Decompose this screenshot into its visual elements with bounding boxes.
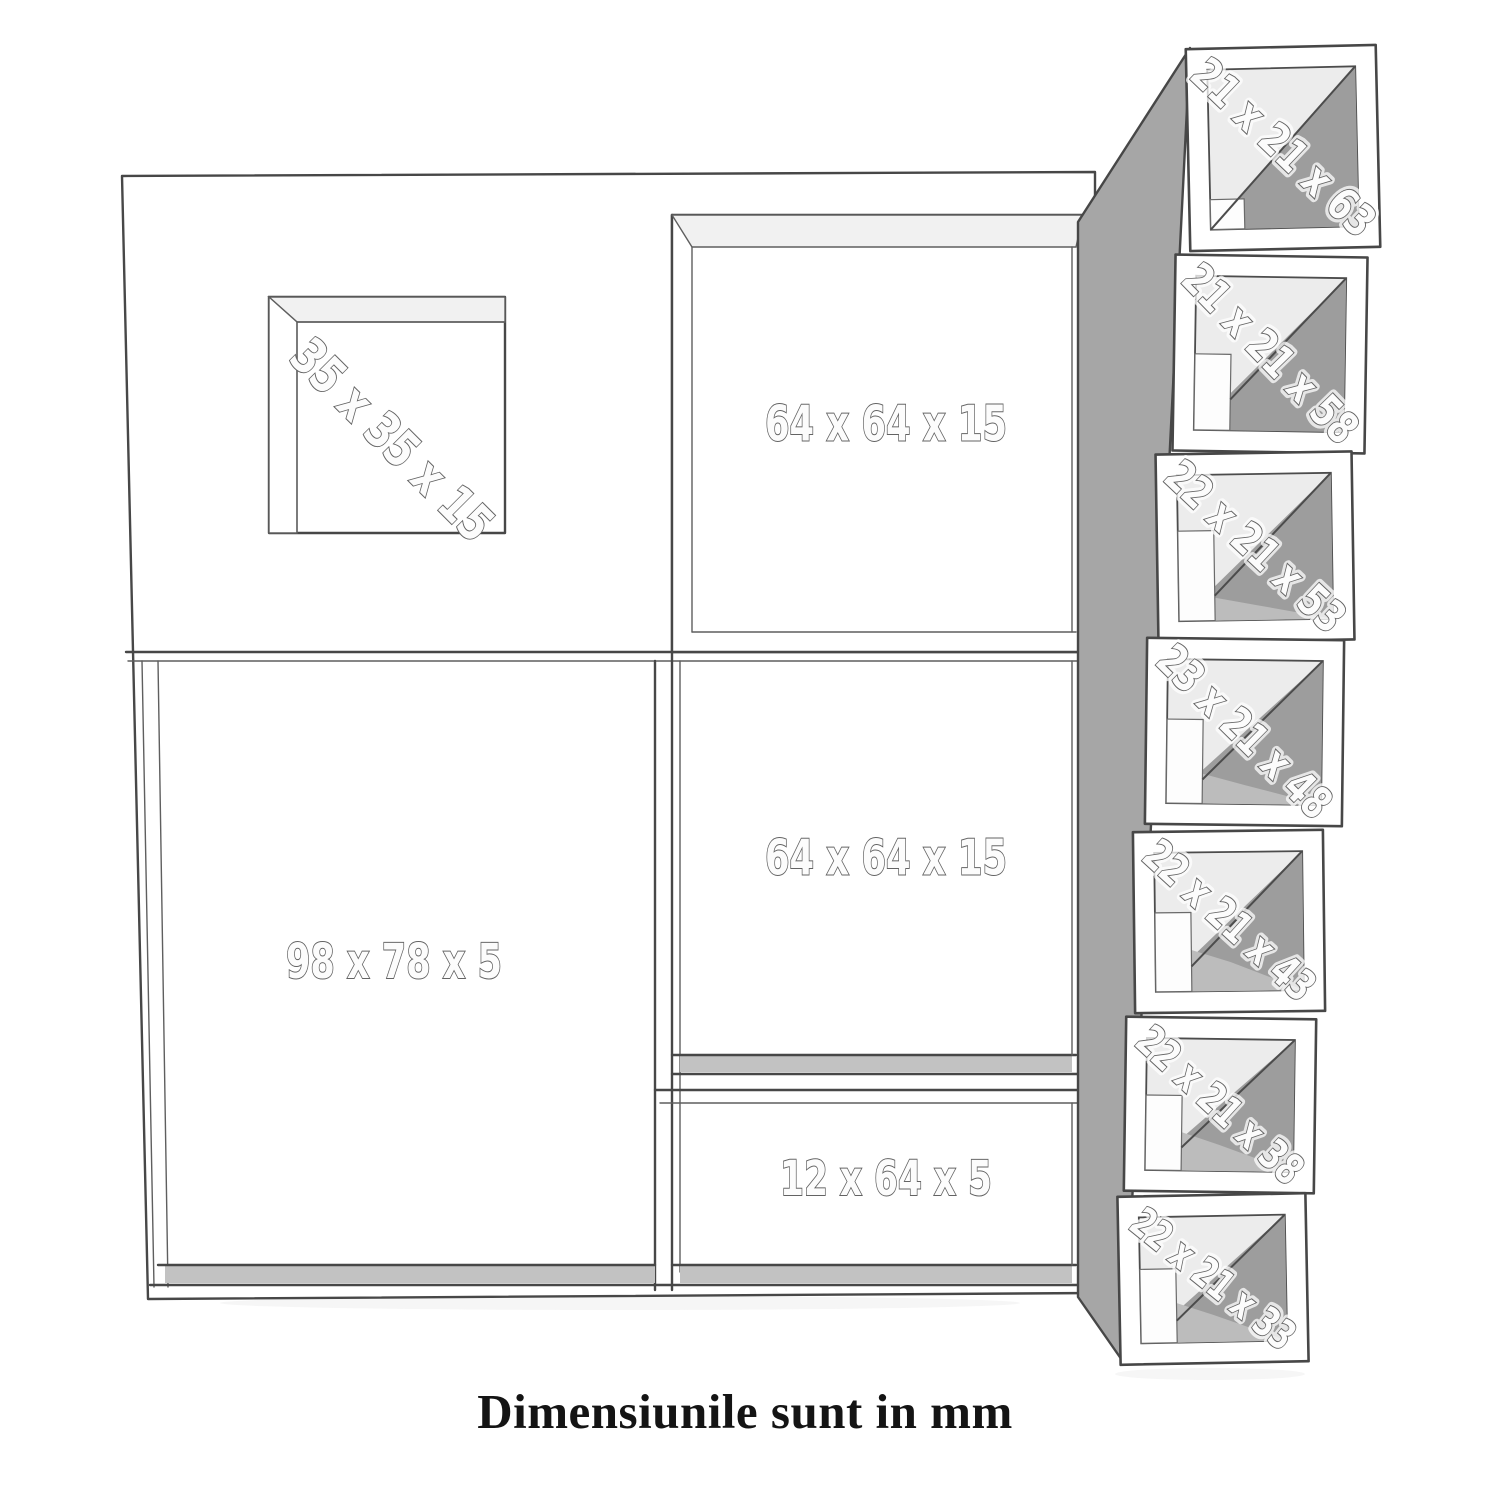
compartment-top-64-label: 64 x 64 x 15 bbox=[765, 396, 1007, 453]
stack-box-1: 21 x 21 x 63 21 x 21 x 63 bbox=[1180, 45, 1387, 252]
stack-box-4: 23 x 21 x 48 23 x 21 x 48 bbox=[1144, 634, 1344, 829]
dimension-diagram: 35 x 35 x 15 64 x 64 x 15 64 x 64 x 15 bbox=[0, 0, 1485, 1485]
compartment-top-64-bevel bbox=[672, 215, 1083, 247]
compartment-bottom-12-label: 12 x 64 x 5 bbox=[780, 1151, 992, 1207]
compartment-top-64: 64 x 64 x 15 bbox=[672, 215, 1083, 652]
caption: Dimensiunile sunt in mm bbox=[477, 1384, 1013, 1439]
diagram-canvas: 35 x 35 x 15 64 x 64 x 15 64 x 64 x 15 bbox=[0, 0, 1485, 1485]
stack-box-7: 22 x 21 x 33 22 x 21 x 33 bbox=[1117, 1193, 1308, 1365]
niche-35: 35 x 35 x 15 bbox=[269, 297, 505, 553]
stack-box-4-wall bbox=[1166, 719, 1203, 803]
compartment-bottom-12-floor bbox=[680, 1265, 1072, 1283]
stack-box-6: 22 x 21 x 38 22 x 21 x 38 bbox=[1124, 1015, 1316, 1195]
stack-box-5-wall bbox=[1155, 912, 1192, 991]
stack-box-5: 22 x 21 x 43 22 x 21 x 43 bbox=[1132, 828, 1326, 1014]
stack-box-3-wall bbox=[1178, 531, 1215, 622]
compartment-left-98-label: 98 x 78 x 5 bbox=[286, 934, 502, 990]
stack-box-6-wall bbox=[1145, 1095, 1182, 1170]
stack-box-2-wall bbox=[1194, 354, 1231, 431]
niche-35-left-bevel bbox=[269, 297, 297, 533]
niche-35-top-bevel bbox=[269, 297, 505, 322]
stack-box-3: 22 x 21 x 53 22 x 21 x 53 bbox=[1154, 448, 1356, 646]
stack-box-2: 21 x 21 x 58 21 x 21 x 58 bbox=[1169, 253, 1371, 455]
compartment-left-98-floor bbox=[165, 1265, 655, 1283]
stack-box-7-wall bbox=[1140, 1269, 1177, 1344]
main-unit: 35 x 35 x 15 64 x 64 x 15 64 x 64 x 15 bbox=[122, 172, 1095, 1299]
compartment-mid-64-label: 64 x 64 x 15 bbox=[765, 830, 1007, 887]
compartment-mid-64-floor bbox=[680, 1055, 1072, 1072]
ground-shadow-right bbox=[1115, 1368, 1305, 1380]
